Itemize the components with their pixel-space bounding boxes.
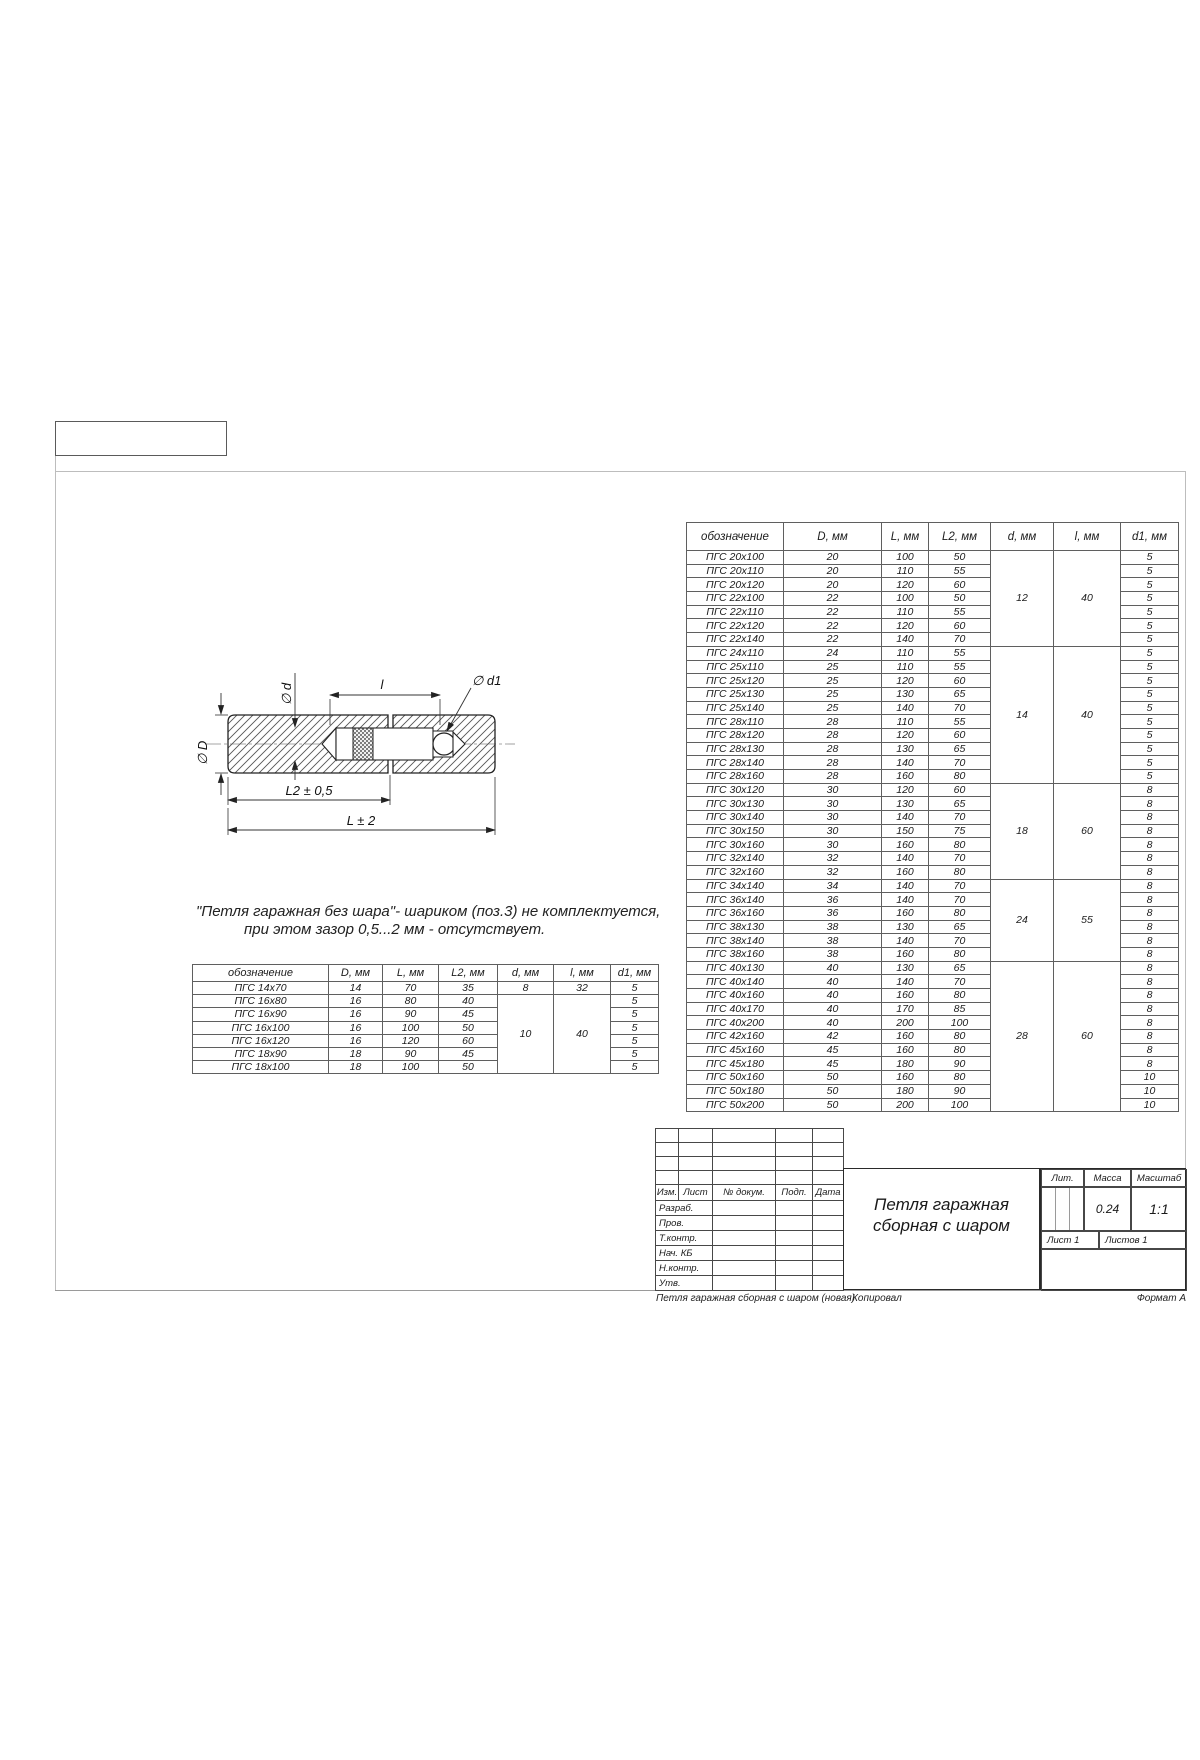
empty-cell — [656, 1157, 679, 1171]
value-cell: 120 — [383, 1034, 439, 1047]
footer-kopiroval: Копировал — [852, 1293, 902, 1304]
value-cell: 90 — [383, 1047, 439, 1060]
value-cell: 30 — [784, 797, 882, 811]
spec-row: ПГС 16x8016804010405 — [193, 995, 659, 1008]
d1-cell: 5 — [1121, 660, 1179, 674]
value-cell: 160 — [882, 947, 929, 961]
value-cell: 60 — [929, 619, 991, 633]
d1-cell: 5 — [1121, 687, 1179, 701]
assembly-note: "Петля гаражная без шара"- шариком (поз.… — [196, 903, 666, 938]
column-header: L2, мм — [929, 523, 991, 551]
value-cell: 22 — [784, 592, 882, 606]
sign-row: Разраб. — [656, 1201, 844, 1216]
empty-cell — [813, 1276, 844, 1291]
sign-row: Нач. КБ — [656, 1246, 844, 1261]
d1-cell: 5 — [1121, 674, 1179, 688]
value-cell: 80 — [929, 1030, 991, 1044]
designation-cell: ПГС 25x140 — [687, 701, 784, 715]
value-cell: 14 — [329, 982, 383, 995]
value-cell: 16 — [329, 1034, 383, 1047]
designation-cell: ПГС 24x110 — [687, 646, 784, 660]
designation-cell: ПГС 20x110 — [687, 564, 784, 578]
column-header: L, мм — [383, 965, 439, 982]
designation-cell: ПГС 16x90 — [193, 1008, 329, 1021]
d-group-cell: 14 — [991, 646, 1054, 783]
designation-cell: ПГС 40x160 — [687, 989, 784, 1003]
lit-cells — [1041, 1187, 1084, 1231]
value-cell: 80 — [929, 865, 991, 879]
designation-cell: ПГС 14x70 — [193, 982, 329, 995]
empty-cell — [813, 1246, 844, 1261]
empty-cell — [813, 1231, 844, 1246]
value-cell: 60 — [929, 578, 991, 592]
d1-cell: 5 — [1121, 564, 1179, 578]
value-cell: 120 — [882, 728, 929, 742]
mass-label: Масса — [1084, 1169, 1131, 1187]
value-cell: 90 — [383, 1008, 439, 1021]
value-cell: 24 — [784, 646, 882, 660]
d1-cell: 8 — [1121, 852, 1179, 866]
designation-cell: ПГС 34x140 — [687, 879, 784, 893]
value-cell: 140 — [882, 852, 929, 866]
value-cell: 160 — [882, 865, 929, 879]
d1-cell: 5 — [1121, 578, 1179, 592]
d1-cell: 8 — [1121, 1002, 1179, 1016]
value-cell: 160 — [882, 838, 929, 852]
designation-cell: ПГС 16x80 — [193, 995, 329, 1008]
d-group-cell: 18 — [991, 783, 1054, 879]
designation-cell: ПГС 40x200 — [687, 1016, 784, 1030]
designation-cell: ПГС 42x160 — [687, 1030, 784, 1044]
l-group-cell: 60 — [1054, 961, 1121, 1112]
value-cell: 35 — [439, 982, 498, 995]
designation-cell: ПГС 32x160 — [687, 865, 784, 879]
sign-label-cell: Т.контр. — [656, 1231, 713, 1246]
value-cell: 20 — [784, 578, 882, 592]
value-cell: 200 — [882, 1016, 929, 1030]
value-cell: 130 — [882, 961, 929, 975]
value-cell: 180 — [882, 1057, 929, 1071]
empty-cell — [713, 1246, 776, 1261]
empty-cell — [713, 1129, 776, 1143]
empty-cell — [713, 1216, 776, 1231]
value-cell: 160 — [882, 906, 929, 920]
empty-cell — [813, 1129, 844, 1143]
empty-cell — [679, 1157, 713, 1171]
d1-cell: 8 — [1121, 961, 1179, 975]
value-cell: 22 — [784, 619, 882, 633]
value-cell: 40 — [784, 975, 882, 989]
revision-empty-row — [656, 1171, 844, 1185]
value-cell: 110 — [882, 605, 929, 619]
value-cell: 180 — [882, 1084, 929, 1098]
designation-cell: ПГС 25x120 — [687, 674, 784, 688]
revision-header-cell: Подп. — [776, 1185, 813, 1201]
designation-cell: ПГС 38x140 — [687, 934, 784, 948]
designation-cell: ПГС 28x110 — [687, 715, 784, 729]
d1-cell: 8 — [1121, 934, 1179, 948]
value-cell: 40 — [784, 961, 882, 975]
value-cell: 160 — [882, 1071, 929, 1085]
d1-cell: 8 — [1121, 906, 1179, 920]
hinge-section-drawing: l ∅ d1 ∅ d ∅ D L2 ± 0,5 L ± 2 — [175, 625, 525, 845]
title-block-right: Лит. Масса Масштаб 0.24 1:1 Лист 1 Листо… — [1040, 1168, 1186, 1290]
d1-cell: 8 — [1121, 879, 1179, 893]
l-group-cell: 32 — [554, 982, 611, 995]
d1-cell: 8 — [1121, 865, 1179, 879]
value-cell: 100 — [383, 1021, 439, 1034]
value-cell: 22 — [784, 605, 882, 619]
empty-cell — [713, 1231, 776, 1246]
spec-row: ПГС 14x701470358325 — [193, 982, 659, 995]
empty-cell — [776, 1231, 813, 1246]
value-cell: 120 — [882, 783, 929, 797]
designation-cell: ПГС 28x130 — [687, 742, 784, 756]
value-cell: 45 — [784, 1043, 882, 1057]
column-header: L2, мм — [439, 965, 498, 982]
d1-cell: 5 — [611, 982, 659, 995]
value-cell: 80 — [383, 995, 439, 1008]
value-cell: 50 — [784, 1084, 882, 1098]
sign-label-cell: Н.контр. — [656, 1261, 713, 1276]
designation-cell: ПГС 30x120 — [687, 783, 784, 797]
designation-cell: ПГС 16x100 — [193, 1021, 329, 1034]
empty-cell — [776, 1216, 813, 1231]
value-cell: 80 — [929, 1043, 991, 1057]
drawing-title-line1: Петля гаражная — [874, 1194, 1009, 1215]
empty-cell — [813, 1143, 844, 1157]
column-header: обозначение — [687, 523, 784, 551]
revision-header-cell: № докум. — [713, 1185, 776, 1201]
value-cell: 25 — [784, 701, 882, 715]
revision-empty-row — [656, 1157, 844, 1171]
value-cell: 75 — [929, 824, 991, 838]
value-cell: 22 — [784, 633, 882, 647]
d1-cell: 5 — [611, 1047, 659, 1060]
designation-cell: ПГС 40x140 — [687, 975, 784, 989]
frame-left-line — [55, 421, 56, 1290]
d1-cell: 5 — [611, 995, 659, 1008]
designation-cell: ПГС 45x160 — [687, 1043, 784, 1057]
sign-row: Н.контр. — [656, 1261, 844, 1276]
designation-cell: ПГС 25x130 — [687, 687, 784, 701]
empty-cell — [776, 1157, 813, 1171]
d1-cell: 8 — [1121, 797, 1179, 811]
value-cell: 60 — [439, 1034, 498, 1047]
designation-cell: ПГС 28x120 — [687, 728, 784, 742]
revision-header-cell: Дата — [813, 1185, 844, 1201]
empty-cell — [813, 1171, 844, 1185]
d1-cell: 8 — [1121, 838, 1179, 852]
column-header: D, мм — [329, 965, 383, 982]
revision-header-row: Изм.Лист№ докум.Подп.Дата — [656, 1185, 844, 1201]
designation-cell: ПГС 16x120 — [193, 1034, 329, 1047]
value-cell: 16 — [329, 1021, 383, 1034]
value-cell: 120 — [882, 578, 929, 592]
value-cell: 25 — [784, 687, 882, 701]
value-cell: 60 — [929, 674, 991, 688]
d1-cell: 5 — [1121, 619, 1179, 633]
designation-cell: ПГС 30x140 — [687, 811, 784, 825]
d1-cell: 5 — [1121, 701, 1179, 715]
sign-label-cell: Пров. — [656, 1216, 713, 1231]
column-header: d, мм — [991, 523, 1054, 551]
value-cell: 70 — [929, 633, 991, 647]
spec-row: ПГС 20x100201005012405 — [687, 551, 1179, 565]
sign-label-cell: Утв. — [656, 1276, 713, 1291]
mass-value: 0.24 — [1084, 1187, 1131, 1231]
value-cell: 28 — [784, 715, 882, 729]
value-cell: 30 — [784, 838, 882, 852]
value-cell: 42 — [784, 1030, 882, 1044]
d1-cell: 8 — [1121, 893, 1179, 907]
d1-cell: 5 — [1121, 605, 1179, 619]
column-header: обозначение — [193, 965, 329, 982]
empty-cell — [776, 1201, 813, 1216]
value-cell: 160 — [882, 1030, 929, 1044]
value-cell: 80 — [929, 1071, 991, 1085]
sign-row: Утв. — [656, 1276, 844, 1291]
d1-cell: 5 — [611, 1008, 659, 1021]
designation-cell: ПГС 45x180 — [687, 1057, 784, 1071]
value-cell: 38 — [784, 934, 882, 948]
column-header: d1, мм — [1121, 523, 1179, 551]
value-cell: 55 — [929, 715, 991, 729]
value-cell: 110 — [882, 564, 929, 578]
value-cell: 55 — [929, 564, 991, 578]
d1-cell: 10 — [1121, 1098, 1179, 1112]
designation-cell: ПГС 22x100 — [687, 592, 784, 606]
d1-cell: 5 — [1121, 551, 1179, 565]
designation-cell: ПГС 50x180 — [687, 1084, 784, 1098]
dim-label-L: L ± 2 — [347, 813, 376, 828]
value-cell: 16 — [329, 995, 383, 1008]
value-cell: 28 — [784, 756, 882, 770]
empty-cell — [656, 1143, 679, 1157]
empty-cell — [776, 1246, 813, 1261]
designation-cell: ПГС 18x90 — [193, 1047, 329, 1060]
d1-cell: 5 — [1121, 646, 1179, 660]
title-block: Изм.Лист№ докум.Подп.ДатаРазраб.Пров.Т.к… — [655, 1128, 1186, 1290]
value-cell: 40 — [784, 1002, 882, 1016]
designation-cell: ПГС 50x200 — [687, 1098, 784, 1112]
empty-cell — [813, 1201, 844, 1216]
scale-label: Масштаб — [1131, 1169, 1187, 1187]
designation-cell: ПГС 38x160 — [687, 947, 784, 961]
header-row: обозначениеD, ммL, ммL2, ммd, ммl, ммd1,… — [193, 965, 659, 982]
sign-label-cell: Разраб. — [656, 1201, 713, 1216]
value-cell: 110 — [882, 715, 929, 729]
d1-cell: 8 — [1121, 1030, 1179, 1044]
value-cell: 140 — [882, 975, 929, 989]
d-group-cell: 28 — [991, 961, 1054, 1112]
empty-cell — [776, 1143, 813, 1157]
revision-header-cell: Изм. — [656, 1185, 679, 1201]
d1-cell: 5 — [611, 1034, 659, 1047]
designation-cell: ПГС 22x140 — [687, 633, 784, 647]
lit-label: Лит. — [1041, 1169, 1084, 1187]
sheet-number: Лист 1 — [1041, 1231, 1099, 1249]
d-group-cell: 24 — [991, 879, 1054, 961]
empty-cell — [713, 1201, 776, 1216]
value-cell: 28 — [784, 770, 882, 784]
value-cell: 28 — [784, 728, 882, 742]
sign-label-cell: Нач. КБ — [656, 1246, 713, 1261]
footer-doc-name: Петля гаражная сборная с шаром (новая) — [656, 1293, 855, 1304]
empty-cell — [813, 1261, 844, 1276]
value-cell: 70 — [929, 975, 991, 989]
value-cell: 70 — [929, 879, 991, 893]
empty-cell — [813, 1216, 844, 1231]
value-cell: 36 — [784, 893, 882, 907]
l-group-cell: 40 — [554, 995, 611, 1074]
designation-cell: ПГС 22x120 — [687, 619, 784, 633]
value-cell: 140 — [882, 811, 929, 825]
spec-row: ПГС 30x120301206018608 — [687, 783, 1179, 797]
designation-cell: ПГС 38x130 — [687, 920, 784, 934]
column-header: l, мм — [1054, 523, 1121, 551]
d1-cell: 8 — [1121, 824, 1179, 838]
value-cell: 25 — [784, 674, 882, 688]
designation-cell: ПГС 50x160 — [687, 1071, 784, 1085]
designation-cell: ПГС 36x140 — [687, 893, 784, 907]
value-cell: 40 — [784, 989, 882, 1003]
value-cell: 34 — [784, 879, 882, 893]
value-cell: 38 — [784, 920, 882, 934]
empty-cell — [713, 1157, 776, 1171]
value-cell: 40 — [439, 995, 498, 1008]
revision-header-cell: Лист — [679, 1185, 713, 1201]
value-cell: 140 — [882, 879, 929, 893]
value-cell: 160 — [882, 770, 929, 784]
empty-cell — [679, 1143, 713, 1157]
small-spec-table: обозначениеD, ммL, ммL2, ммd, ммl, ммd1,… — [192, 964, 659, 1074]
value-cell: 150 — [882, 824, 929, 838]
value-cell: 130 — [882, 742, 929, 756]
designation-cell: ПГС 40x130 — [687, 961, 784, 975]
empty-cell — [713, 1171, 776, 1185]
d1-cell: 5 — [1121, 756, 1179, 770]
d-group-cell: 12 — [991, 551, 1054, 647]
value-cell: 65 — [929, 742, 991, 756]
d1-cell: 8 — [1121, 1016, 1179, 1030]
frame-top-line — [55, 471, 1186, 472]
value-cell: 50 — [439, 1021, 498, 1034]
value-cell: 100 — [882, 551, 929, 565]
value-cell: 65 — [929, 920, 991, 934]
designation-cell: ПГС 18x100 — [193, 1061, 329, 1074]
designation-cell: ПГС 20x100 — [687, 551, 784, 565]
note-line-1: "Петля гаражная без шара"- шариком (поз.… — [196, 903, 666, 921]
empty-cell — [713, 1143, 776, 1157]
value-cell: 55 — [929, 605, 991, 619]
empty-cell — [656, 1129, 679, 1143]
value-cell: 70 — [929, 934, 991, 948]
value-cell: 90 — [929, 1084, 991, 1098]
value-cell: 25 — [784, 660, 882, 674]
drawing-title-line2: сборная с шаром — [873, 1215, 1010, 1236]
d1-cell: 5 — [611, 1021, 659, 1034]
value-cell: 45 — [439, 1047, 498, 1060]
value-cell: 160 — [882, 1043, 929, 1057]
d-group-cell: 8 — [498, 982, 554, 995]
value-cell: 45 — [439, 1008, 498, 1021]
value-cell: 160 — [882, 989, 929, 1003]
d1-cell: 8 — [1121, 975, 1179, 989]
dim-label-d1: ∅ d1 — [472, 673, 501, 688]
d1-cell: 8 — [1121, 989, 1179, 1003]
value-cell: 65 — [929, 797, 991, 811]
value-cell: 170 — [882, 1002, 929, 1016]
value-cell: 80 — [929, 947, 991, 961]
value-cell: 60 — [929, 728, 991, 742]
spec-row: ПГС 24x110241105514405 — [687, 646, 1179, 660]
d1-cell: 8 — [1121, 920, 1179, 934]
value-cell: 36 — [784, 906, 882, 920]
d1-cell: 10 — [1121, 1071, 1179, 1085]
value-cell: 120 — [882, 619, 929, 633]
value-cell: 20 — [784, 551, 882, 565]
value-cell: 50 — [784, 1098, 882, 1112]
value-cell: 200 — [882, 1098, 929, 1112]
value-cell: 140 — [882, 756, 929, 770]
value-cell: 70 — [929, 893, 991, 907]
frame-bottom-line — [55, 1290, 1186, 1291]
value-cell: 32 — [784, 852, 882, 866]
d1-cell: 10 — [1121, 1084, 1179, 1098]
value-cell: 100 — [882, 592, 929, 606]
d1-cell: 5 — [1121, 728, 1179, 742]
designation-cell: ПГС 30x150 — [687, 824, 784, 838]
value-cell: 140 — [882, 934, 929, 948]
scale-value: 1:1 — [1131, 1187, 1187, 1231]
value-cell: 140 — [882, 893, 929, 907]
l-group-cell: 40 — [1054, 646, 1121, 783]
value-cell: 140 — [882, 633, 929, 647]
value-cell: 130 — [882, 920, 929, 934]
header-row: обозначениеD, ммL, ммL2, ммd, ммl, ммd1,… — [687, 523, 1179, 551]
value-cell: 30 — [784, 783, 882, 797]
dim-label-D: ∅ D — [195, 741, 210, 765]
value-cell: 55 — [929, 660, 991, 674]
empty-cell — [679, 1171, 713, 1185]
column-header: d1, мм — [611, 965, 659, 982]
revision-empty-row — [656, 1143, 844, 1157]
designation-cell: ПГС 25x110 — [687, 660, 784, 674]
d-group-cell: 10 — [498, 995, 554, 1074]
value-cell: 50 — [784, 1071, 882, 1085]
pin-shaft — [336, 728, 433, 760]
footer-format: Формат А — [1108, 1293, 1186, 1304]
empty-cell — [813, 1157, 844, 1171]
empty-cell — [776, 1171, 813, 1185]
empty-cell — [776, 1276, 813, 1291]
value-cell: 70 — [929, 701, 991, 715]
drawing-sheet: l ∅ d1 ∅ d ∅ D L2 ± 0,5 L ± 2 "Петля гар… — [0, 0, 1200, 1760]
d1-cell: 8 — [1121, 1057, 1179, 1071]
spec-row: ПГС 34x140341407024558 — [687, 879, 1179, 893]
value-cell: 45 — [784, 1057, 882, 1071]
value-cell: 18 — [329, 1047, 383, 1060]
d1-cell: 8 — [1121, 811, 1179, 825]
designation-cell: ПГС 30x130 — [687, 797, 784, 811]
value-cell: 130 — [882, 687, 929, 701]
value-cell: 30 — [784, 824, 882, 838]
value-cell: 70 — [929, 811, 991, 825]
value-cell: 70 — [929, 852, 991, 866]
designation-cell: ПГС 30x160 — [687, 838, 784, 852]
designation-cell: ПГС 40x170 — [687, 1002, 784, 1016]
